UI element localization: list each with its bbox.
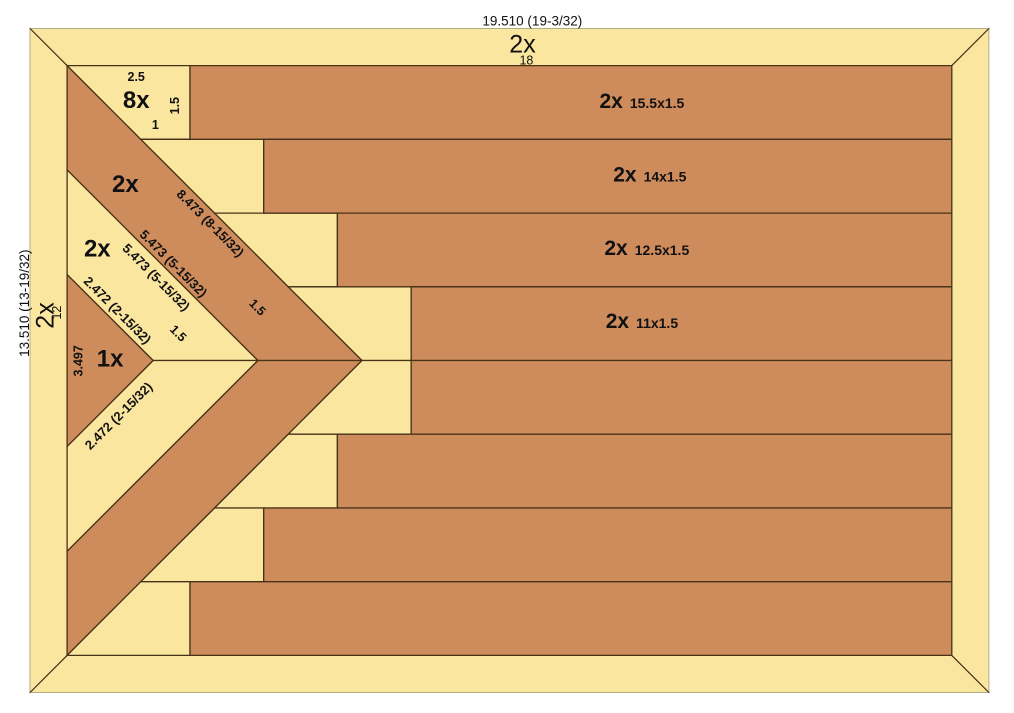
stripe-label-row4-part-1: 11x1.5 <box>636 315 678 331</box>
stripe-row7 <box>264 508 952 582</box>
frame-left-stile <box>30 29 67 693</box>
dim-overall-width: 19.510 (19-3/32) <box>482 13 582 28</box>
frame-right-stile <box>952 29 989 693</box>
dim-trapezoid-bottom: 1 <box>152 118 159 132</box>
stripe-row4 <box>411 287 952 361</box>
stripe-label-row4-part-0: 2x <box>606 310 630 333</box>
stripe-row5 <box>411 361 952 435</box>
stripe-row8 <box>190 582 952 656</box>
stripe-label-row1-part-1: 15.5x1.5 <box>630 95 685 111</box>
stripe-label-row2-part-1: 14x1.5 <box>644 169 687 185</box>
qty-filler-trapezoid: 8x <box>123 87 150 114</box>
stripe-row6 <box>337 434 951 508</box>
qty-center-triangle: 1x <box>97 346 124 373</box>
dim-triangle-height: 3.497 <box>72 345 86 376</box>
len-top-rail: 18 <box>519 53 533 67</box>
stripe-label-row3-part-1: 12.5x1.5 <box>635 242 690 258</box>
stripe-label-row1-part-0: 2x <box>599 90 623 113</box>
qty-outer-chevron: 2x <box>112 171 139 198</box>
stripe-row1 <box>190 66 952 140</box>
stripe-label-row2-part-0: 2x <box>613 164 637 187</box>
dim-overall-height: 13.510 (13-19/32) <box>17 250 32 357</box>
dim-trapezoid-top: 2.5 <box>128 70 145 84</box>
cut-diagram-canvas: 19.510 (19-3/32)2x1813.510 (13-19/32)2x1… <box>0 0 1014 713</box>
qty-inner-chevron: 2x <box>84 236 111 263</box>
len-left-stile: 12 <box>50 306 64 320</box>
stripe-row2 <box>264 139 952 213</box>
dim-trapezoid-right: 1.5 <box>168 97 182 114</box>
stripe-label-row3-part-0: 2x <box>604 237 628 260</box>
frame-bottom-rail <box>30 655 989 692</box>
cut-diagram: 19.510 (19-3/32)2x1813.510 (13-19/32)2x1… <box>0 0 1014 713</box>
